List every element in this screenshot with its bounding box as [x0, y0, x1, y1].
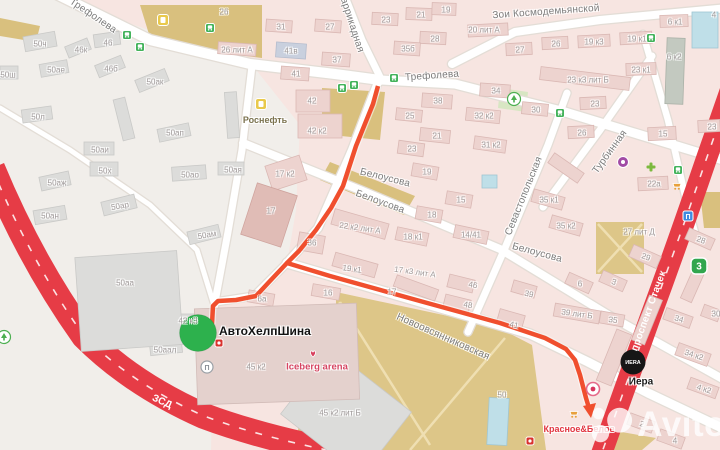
- svg-text:3: 3: [696, 262, 702, 273]
- parking-blue-icon[interactable]: П: [683, 211, 693, 221]
- transit-stop-icon[interactable]: [647, 34, 656, 43]
- building: [194, 303, 359, 405]
- transit-stop-icon[interactable]: [556, 109, 565, 118]
- fuel-station-icon[interactable]: [256, 99, 267, 110]
- svg-text:ИERA: ИERA: [625, 360, 641, 366]
- building: [298, 114, 342, 138]
- building: [218, 42, 257, 57]
- building: [315, 19, 342, 33]
- building: [395, 108, 422, 123]
- building: [218, 162, 244, 175]
- transit-stop-icon[interactable]: [136, 43, 145, 52]
- store-ring-icon[interactable]: [587, 383, 600, 396]
- map-canvas[interactable]: ППИERA3 ТрефолеваТрефолеваЗои Космодемья…: [0, 0, 720, 450]
- destination-marker[interactable]: [180, 315, 217, 352]
- shop-poi-icon[interactable]: [215, 339, 223, 347]
- building: [468, 23, 509, 37]
- building: [281, 66, 310, 81]
- transit-stop-icon[interactable]: [390, 74, 399, 83]
- building: [322, 52, 351, 67]
- building: [394, 41, 421, 56]
- building: [420, 31, 447, 44]
- building: [422, 93, 453, 109]
- building: [568, 125, 595, 138]
- building: [626, 62, 656, 75]
- building: [487, 398, 509, 446]
- building: [0, 66, 18, 79]
- shop-poi-icon[interactable]: [526, 437, 534, 445]
- transit-stop-icon[interactable]: [674, 166, 683, 175]
- iera-logo-icon[interactable]: ИERA: [621, 350, 646, 375]
- svg-text:П: П: [204, 365, 209, 372]
- map-graphics: ППИERA3: [0, 0, 720, 450]
- building: [480, 83, 511, 98]
- transit-stop-icon[interactable]: [123, 31, 132, 40]
- building: [276, 42, 307, 59]
- building: [542, 36, 569, 49]
- building: [692, 12, 718, 48]
- building: [482, 175, 497, 188]
- building: [84, 142, 114, 155]
- pharmacy-icon[interactable]: [618, 157, 629, 168]
- transit-stop-icon[interactable]: [350, 81, 359, 90]
- building: [432, 3, 456, 16]
- park-tree-icon[interactable]: [508, 93, 521, 106]
- building: [372, 12, 399, 25]
- building: [172, 165, 207, 181]
- fuel-station-icon[interactable]: [158, 15, 169, 26]
- building: [90, 162, 118, 176]
- building: [578, 34, 611, 48]
- svg-text:П: П: [685, 214, 690, 221]
- transit-stop-icon[interactable]: [338, 84, 347, 93]
- route-3-badge[interactable]: 3: [691, 258, 707, 274]
- building: [521, 102, 548, 117]
- transit-stop-icon[interactable]: [206, 24, 215, 33]
- building: [266, 19, 293, 33]
- building: [698, 119, 720, 132]
- building: [580, 96, 607, 109]
- building: [406, 8, 432, 21]
- building: [75, 251, 183, 352]
- parking-icon[interactable]: П: [201, 361, 213, 373]
- building: [638, 176, 669, 191]
- building: [648, 126, 677, 140]
- building: [660, 15, 688, 28]
- building: [419, 127, 450, 143]
- avito-watermark: Avito: [588, 402, 720, 448]
- building: [296, 90, 330, 112]
- park-tree-icon[interactable]: [0, 331, 11, 344]
- building: [506, 42, 533, 55]
- avito-watermark-text: Avito: [637, 405, 720, 445]
- building: [665, 38, 685, 105]
- avito-logo-icon: [588, 402, 634, 448]
